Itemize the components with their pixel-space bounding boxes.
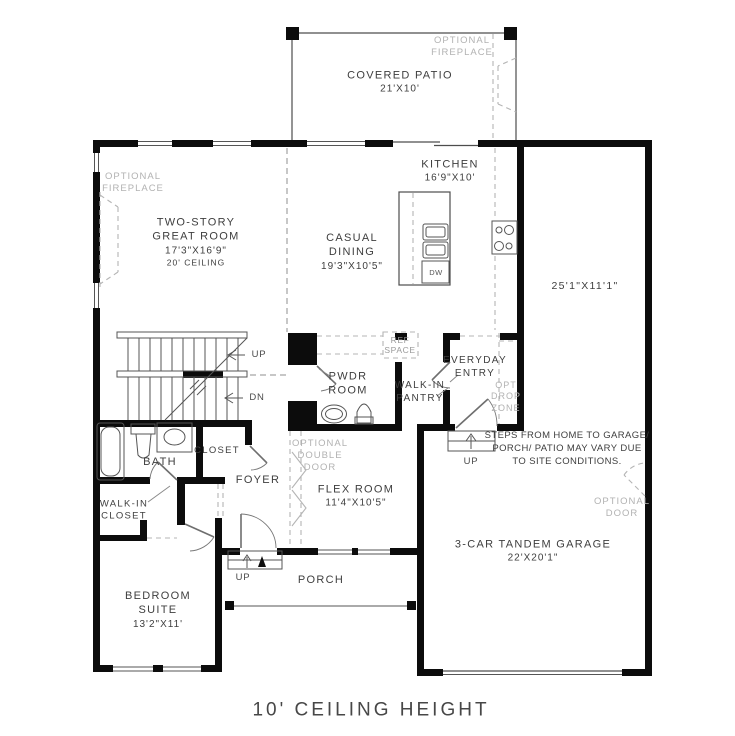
staircase [117,332,247,420]
steps-disclaimer: STEPS FROM HOME TO GARAGE/ PORCH/ PATIO … [485,430,650,468]
window-top-3 [307,142,365,146]
patio-slider-door [393,142,478,146]
dn-arrow-stairs [225,393,243,403]
ref-space-label: REF SPACE [384,335,415,355]
powder-toilet-fixture [355,404,373,424]
bath-toilet-fixture [131,424,155,458]
room-label-casual-dining: CASUAL DINING 19'3"X10'5" [321,231,383,273]
stair-treads [128,338,238,420]
optional-fireplace-top-label: OPTIONAL FIREPLACE [431,35,493,59]
room-label-everyday-entry: EVERYDAY ENTRY [443,354,507,380]
window-left-2 [95,283,99,308]
optional-double-door-label: OPTIONAL DOUBLE DOOR [292,438,348,474]
up-porch-label: UP [236,572,251,584]
window-top-1 [138,142,172,146]
porch-slab [225,601,416,610]
optional-fireplace-top-shape [498,58,516,112]
optional-fireplace-left-label: OPTIONAL FIREPLACE [102,171,164,195]
bath-sink-fixture [157,423,192,452]
garage-door [443,671,622,675]
optional-door-label: OPTIONAL DOOR [594,496,650,520]
dn-stairs-label: DN [249,392,264,404]
window-flex-1 [318,550,352,554]
floor-plan: COVERED PATIO 21'X10' OPTIONAL FIREPLACE… [0,0,735,736]
room-label-garage: 3-CAR TANDEM GARAGE 22'X20'1" [455,537,611,564]
dishwasher-label: DW [429,268,443,278]
powder-sink-fixture [322,405,347,423]
window-bedroom-2 [163,667,201,671]
window-top-2 [213,142,251,146]
porch-step-marker [258,556,266,567]
room-label-covered-patio: COVERED PATIO 21'X10' [347,68,453,95]
window-bedroom-1 [113,667,153,671]
up-stairs-label: UP [252,349,267,361]
bathtub-fixture [97,423,124,480]
optional-fireplace-left-shape [100,192,118,287]
plan-title: 10' CEILING HEIGHT [252,699,489,724]
room-label-kitchen: KITCHEN 16'9"X10' [421,157,478,184]
room-label-pwdr: PWDR ROOM [328,370,367,399]
closet-door [250,446,267,470]
front-door [241,514,276,548]
opt-drop-zone-label: OPT DROP ZONE [491,380,521,414]
room-label-bedroom-suite: BEDROOM SUITE 13'2"X11' [125,589,191,631]
room-label-pantry: WALK-IN PANTRY [395,379,445,405]
room-label-bath: BATH [143,455,177,469]
floor-plan-drawing [0,0,735,736]
room-label-walk-in-closet: WALK-IN CLOSET [100,499,148,524]
window-left-1 [95,153,99,172]
bedroom-door [185,524,214,551]
room-label-foyer: FOYER [236,473,280,487]
room-label-flex: FLEX ROOM 11'4"X10'5" [318,482,395,509]
cooktop-fixture [492,221,517,254]
room-label-porch: PORCH [298,573,344,587]
room-label-great-room: TWO-STORY GREAT ROOM 17'3"X16'9" 20' CEI… [152,216,239,269]
wing-dims-label: 25'1"X11'1" [551,280,618,294]
up-garage-label: UP [464,456,479,468]
room-label-closet: CLOSET [194,445,240,457]
foyer-cased-opening [218,484,223,518]
up-arrow-porch [243,555,251,568]
window-flex-2 [358,550,390,554]
up-arrow-stairs [228,350,245,360]
